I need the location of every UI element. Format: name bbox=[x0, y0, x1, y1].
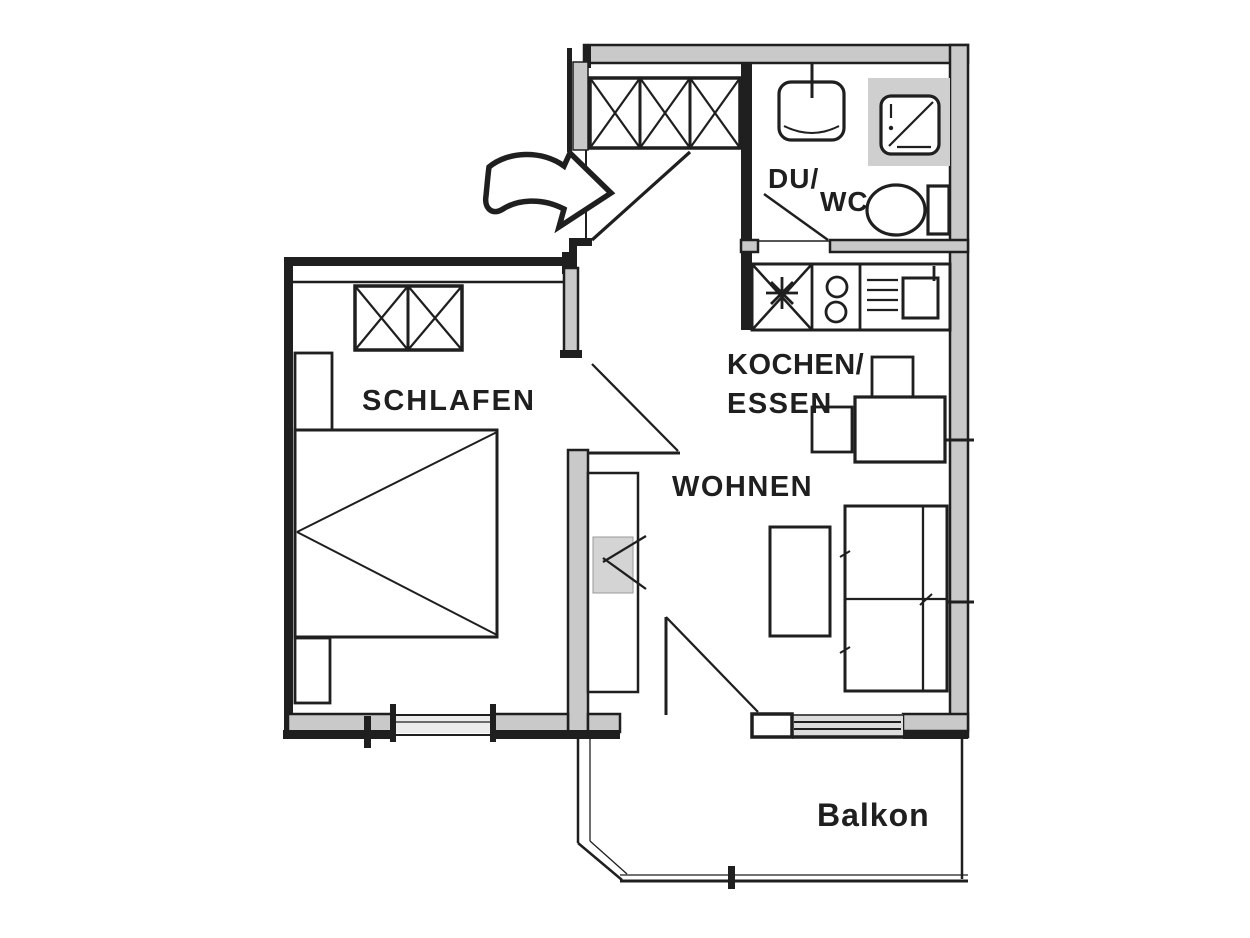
entry-jamb-h bbox=[569, 238, 592, 246]
wall-bottom-seg2 bbox=[493, 714, 568, 732]
room-label-schlafen: SCHLAFEN bbox=[362, 385, 536, 417]
wall-divider-lower bbox=[568, 450, 588, 732]
wall-entry-edge bbox=[567, 48, 572, 152]
room-label-essen: ESSEN bbox=[727, 388, 833, 420]
bed-frame bbox=[295, 430, 497, 637]
wall-bottom-tick bbox=[364, 716, 371, 748]
wall-bedroom-left bbox=[284, 257, 293, 738]
bedroom-window bbox=[390, 704, 496, 742]
wall-bath-bottom-left bbox=[741, 240, 758, 252]
wall-bath-divider bbox=[741, 62, 752, 330]
wall-divider-stub bbox=[564, 268, 578, 352]
bedroom-wardrobe-icon bbox=[355, 286, 462, 350]
kitchen-counter bbox=[752, 264, 950, 330]
bed-icon bbox=[295, 430, 497, 637]
living-window-band bbox=[792, 714, 903, 738]
bedroom-door bbox=[588, 364, 680, 453]
wall-bottom-seg4 bbox=[903, 714, 968, 731]
wall-bottom-seg1-outer bbox=[283, 730, 393, 739]
wall-bedroom-top-outer bbox=[288, 257, 568, 266]
room-label-du: DU/ bbox=[768, 163, 819, 194]
balcony-rail-tick bbox=[728, 866, 735, 889]
shower-drain bbox=[889, 126, 893, 130]
balcony-door bbox=[666, 617, 758, 715]
bedroom-door-swing bbox=[592, 364, 678, 451]
entrance-arrow-icon bbox=[486, 153, 611, 227]
dining-chair-top-icon bbox=[872, 357, 913, 397]
balcony-chamfer-outer bbox=[578, 843, 622, 880]
living-room-window bbox=[752, 714, 903, 738]
balcony-door-post bbox=[752, 714, 792, 737]
bedroom-window-band bbox=[393, 716, 493, 733]
toilet-tank bbox=[928, 186, 949, 234]
room-label-balkon: Balkon bbox=[817, 797, 930, 833]
toilet-icon bbox=[867, 185, 949, 235]
balcony-door-swing bbox=[666, 617, 758, 712]
wall-bath-bottom-right bbox=[830, 240, 968, 252]
stove-burner-2 bbox=[826, 302, 846, 322]
bedroom-window-tick-right bbox=[490, 704, 496, 742]
bedroom-window-tick-left bbox=[390, 704, 396, 742]
wall-right bbox=[950, 45, 968, 737]
nightstand-top-icon bbox=[295, 353, 332, 430]
wall-bottom-seg23-outer bbox=[493, 730, 620, 739]
floorplan-page: SCHLAFEN DU/ WC KOCHEN/ ESSEN WOHNEN Bal… bbox=[0, 0, 1250, 938]
nightstand-bottom-icon bbox=[295, 638, 330, 703]
hall-wardrobe-icon bbox=[590, 78, 740, 148]
coffee-table-icon bbox=[770, 527, 830, 636]
stove-burner-1 bbox=[827, 277, 847, 297]
shower-icon bbox=[868, 78, 950, 166]
room-label-wohnen: WOHNEN bbox=[672, 471, 813, 503]
toilet-bowl bbox=[867, 185, 925, 235]
floorplan-drawing: SCHLAFEN DU/ WC KOCHEN/ ESSEN WOHNEN Bal… bbox=[0, 0, 1250, 938]
wall-divider-stub-cap bbox=[560, 350, 582, 358]
wall-bottom-seg1 bbox=[288, 714, 393, 732]
bathroom-door bbox=[758, 194, 829, 241]
washbasin-icon bbox=[779, 64, 844, 140]
sofa-icon bbox=[840, 506, 947, 691]
wall-bottom-seg3 bbox=[588, 714, 620, 732]
room-label-kochen: KOCHEN/ bbox=[727, 349, 864, 381]
dining-table-icon bbox=[855, 397, 945, 462]
wall-top bbox=[584, 45, 968, 63]
wall-entry-fill bbox=[573, 62, 588, 150]
kitchen-sink-basin bbox=[903, 278, 938, 318]
room-label-wc: WC bbox=[820, 186, 869, 217]
bathroom-door-leaf bbox=[764, 194, 828, 240]
wall-bottom-seg4-outer bbox=[903, 731, 968, 739]
tv-cabinet-icon bbox=[588, 473, 646, 692]
